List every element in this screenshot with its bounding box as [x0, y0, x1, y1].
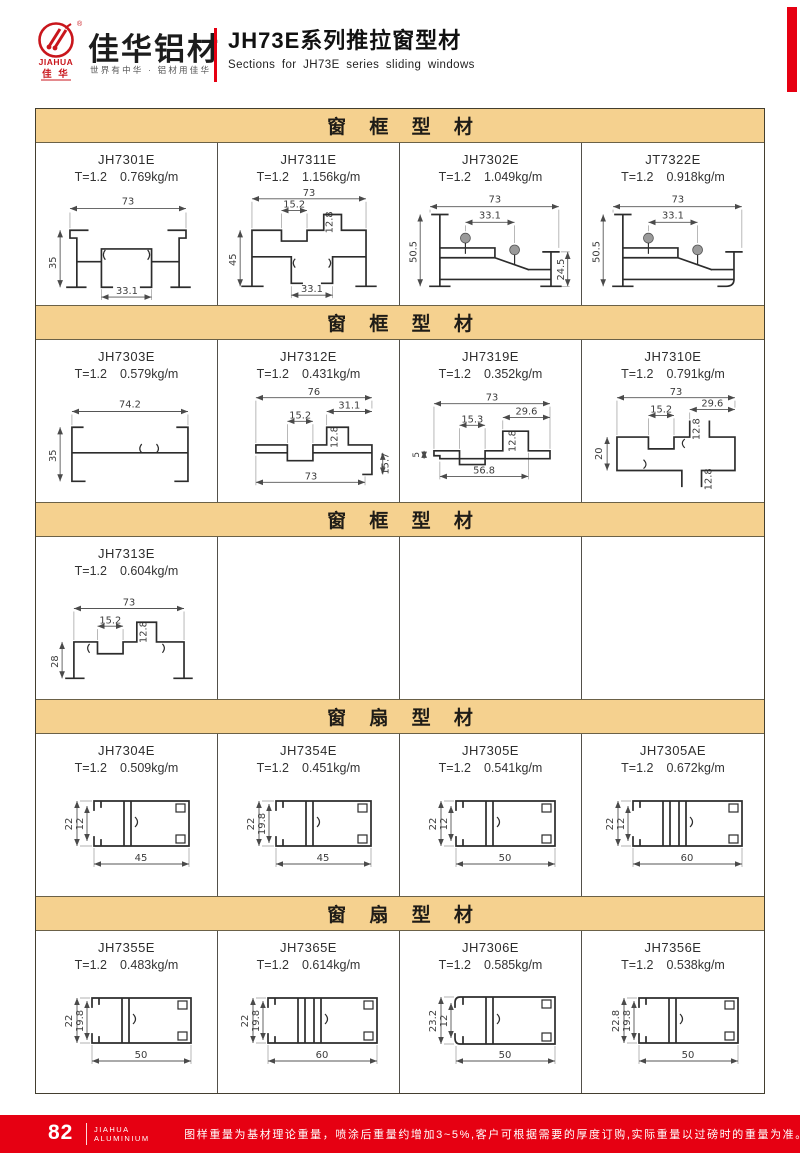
section-band-frame-3: 窗 框 型 材	[36, 502, 764, 537]
spec-weight: 1.049kg/m	[484, 170, 542, 184]
dim-label: 73	[122, 197, 135, 208]
spec-weight: 0.538kg/m	[666, 958, 724, 972]
spec-weight: 0.585kg/m	[484, 958, 542, 972]
profile-code: JH7305AE	[582, 743, 764, 758]
spec-thickness: T=1.2	[439, 958, 471, 972]
dim-label: 45	[228, 253, 239, 266]
dim-label: 50	[135, 1050, 148, 1061]
dim-label: 33.1	[301, 284, 323, 295]
spec-thickness: T=1.2	[257, 170, 289, 184]
profile-drawing-jh7354e: 22 19.8 45	[221, 776, 396, 876]
profile-spec: T=1.2 0.451kg/m	[218, 761, 399, 775]
spec-thickness: T=1.2	[621, 170, 653, 184]
section-band-sash-1: 窗 扇 型 材	[36, 699, 764, 734]
profile-spec: T=1.2 0.672kg/m	[582, 761, 764, 775]
spec-thickness: T=1.2	[75, 367, 107, 381]
profile-code: JH7302E	[400, 152, 581, 167]
footer-brand-line1: JIAHUA	[94, 1125, 150, 1134]
profile-code: JH7319E	[400, 349, 581, 364]
spec-weight: 0.352kg/m	[484, 367, 542, 381]
dim-label: 22	[64, 1015, 75, 1028]
dim-label: 22	[246, 818, 257, 831]
spec-weight: 0.672kg/m	[666, 761, 724, 775]
dim-label: 73	[303, 188, 316, 199]
profile-spec: T=1.2 0.541kg/m	[400, 761, 581, 775]
spec-weight: 0.431kg/m	[302, 367, 360, 381]
table-row: JH7303E T=1.2 0.579kg/m 74.2 35 JH7312E	[36, 340, 764, 502]
profile-spec: T=1.2 0.352kg/m	[400, 367, 581, 381]
dim-label: 50	[681, 1050, 694, 1061]
registered-mark: ®	[77, 20, 83, 28]
dim-label: 22.8	[611, 1010, 622, 1032]
profile-code: JH7304E	[36, 743, 217, 758]
profile-cell-jh7303e: JH7303E T=1.2 0.579kg/m 74.2 35	[36, 340, 218, 502]
profile-drawing-jh7304e: 22 12 45	[39, 776, 214, 876]
dim-label: 35	[48, 256, 59, 269]
profile-drawing-jh7305e: 22 12 50	[403, 776, 578, 876]
footer-bar: 82 JIAHUA ALUMINIUM 图样重量为基材理论重量，喷涂后重量约增加…	[0, 1115, 800, 1153]
dim-label: 33.1	[662, 210, 684, 221]
profile-code: JH7305E	[400, 743, 581, 758]
dim-label: 15.3	[461, 414, 483, 425]
profile-spec: T=1.2 0.918kg/m	[582, 170, 764, 184]
dim-label: 22	[605, 818, 616, 831]
dim-label: 50.5	[408, 241, 419, 263]
spec-weight: 0.918kg/m	[666, 170, 724, 184]
dim-label: 33.1	[479, 210, 501, 221]
dim-label: 12.8	[691, 418, 702, 440]
profile-cell-jh7354e: JH7354E T=1.2 0.451kg/m 22 19.8 45	[218, 734, 400, 896]
footer-note: 图样重量为基材理论重量，喷涂后重量约增加3~5%,客户可根据需要的厚度订购,实际…	[200, 1115, 792, 1153]
section-band-frame-1: 窗 框 型 材	[36, 109, 764, 143]
dim-label: 19.8	[622, 1010, 633, 1032]
catalog-page: ® JIAHUA 佳 华 佳华铝材 世界有中华 · 铝材用佳华 JH73E系列推…	[0, 0, 800, 1167]
spec-weight: 0.604kg/m	[120, 564, 178, 578]
spec-thickness: T=1.2	[439, 170, 471, 184]
dim-label: 50	[499, 1050, 512, 1061]
dim-label: 73	[486, 393, 499, 404]
profile-spec: T=1.2 1.049kg/m	[400, 170, 581, 184]
section-band-frame-2: 窗 框 型 材	[36, 305, 764, 340]
dim-label: 22	[428, 818, 439, 831]
profile-code: JH7355E	[36, 940, 217, 955]
profile-spec: T=1.2 0.579kg/m	[36, 367, 217, 381]
spec-thickness: T=1.2	[75, 170, 107, 184]
profile-drawing-jh7302e: 73 33.1 50.5 24.5	[403, 185, 578, 303]
spec-thickness: T=1.2	[621, 761, 653, 775]
spec-weight: 0.483kg/m	[120, 958, 178, 972]
dim-label: 12.8	[330, 426, 341, 448]
profile-spec: T=1.2 1.156kg/m	[218, 170, 399, 184]
dim-label: 23.2	[428, 1010, 439, 1032]
spec-thickness: T=1.2	[621, 367, 653, 381]
profile-code: JH7313E	[36, 546, 217, 561]
profile-cell-jh7302e: JH7302E T=1.2 1.049kg/m 73 33.1 50.5 24.…	[400, 143, 582, 305]
footer-brand: JIAHUA ALUMINIUM	[94, 1125, 150, 1143]
table-row: JH7355E T=1.2 0.483kg/m 22 19.8 50	[36, 931, 764, 1093]
profile-cell-jh7310e: JH7310E T=1.2 0.791kg/m 73 15.2 29.6 12.…	[582, 340, 764, 502]
spec-thickness: T=1.2	[257, 958, 289, 972]
profile-cell-jh7304e: JH7304E T=1.2 0.509kg/m 22 12 45	[36, 734, 218, 896]
dim-label: 45	[317, 853, 330, 864]
dim-label: 12	[616, 818, 627, 831]
profile-drawing-jh7312e: 76 31.1 15.2 12.8 73 15.7	[221, 382, 396, 500]
profile-spec: T=1.2 0.483kg/m	[36, 958, 217, 972]
spec-thickness: T=1.2	[439, 761, 471, 775]
dim-label: 56.8	[473, 465, 495, 476]
dim-label: 50.5	[591, 241, 602, 263]
profile-spec: T=1.2 0.604kg/m	[36, 564, 217, 578]
header-red-divider	[214, 28, 217, 82]
profile-code: JT7322E	[582, 152, 764, 167]
profile-cell-jh7305e: JH7305E T=1.2 0.541kg/m 22 12 50	[400, 734, 582, 896]
spec-weight: 0.614kg/m	[302, 958, 360, 972]
profile-drawing-jh7306e: 23.2 12 50	[403, 973, 578, 1073]
footer-brand-line2: ALUMINIUM	[94, 1134, 150, 1143]
profile-drawing-jh7310e: 73 15.2 29.6 12.8 20 12.8	[586, 382, 761, 500]
spec-weight: 0.509kg/m	[120, 761, 178, 775]
profile-cell-jh7311e: JH7311E T=1.2 1.156kg/m 73 15.2 12.8 45 …	[218, 143, 400, 305]
profile-drawing-jh7305ae: 22 12 60	[586, 776, 761, 876]
profile-cell-jh7319e: JH7319E T=1.2 0.352kg/m 73 15.3 29.6 12.…	[400, 340, 582, 502]
spec-weight: 0.769kg/m	[120, 170, 178, 184]
profile-drawing-jh7319e: 73 15.3 29.6 12.8 5 56.8	[403, 382, 578, 500]
series-title-cn: JH73E系列推拉窗型材	[228, 23, 475, 55]
dim-label: 73	[489, 195, 502, 206]
spec-weight: 0.541kg/m	[484, 761, 542, 775]
profile-code: JH7311E	[218, 152, 399, 167]
profile-drawing-jh7356e: 22.8 19.8 50	[586, 973, 761, 1073]
profile-spec: T=1.2 0.614kg/m	[218, 958, 399, 972]
profile-cell-jh7305ae: JH7305AE T=1.2 0.672kg/m 22 12 60	[582, 734, 764, 896]
page-header: ® JIAHUA 佳 华 佳华铝材 世界有中华 · 铝材用佳华 JH73E系列推…	[0, 0, 800, 108]
dim-label: 73	[671, 195, 684, 206]
empty-cell	[582, 537, 764, 699]
dim-label: 50	[499, 853, 512, 864]
dim-label: 33.1	[116, 286, 138, 297]
spec-thickness: T=1.2	[621, 958, 653, 972]
dim-label: 22	[64, 818, 75, 831]
dim-label: 15.2	[283, 200, 305, 211]
table-row: JH7304E T=1.2 0.509kg/m 22 12 45	[36, 734, 764, 896]
dim-label: 12.8	[508, 430, 519, 452]
profile-cell-jh7301e: JH7301E T=1.2 0.769kg/m 73 35 33.1	[36, 143, 218, 305]
profile-cell-jh7313e: JH7313E T=1.2 0.604kg/m 73 15.2 12.8 28	[36, 537, 218, 699]
jiahua-logo-icon: ® JIAHUA 佳 华	[28, 16, 84, 82]
dim-label: 60	[316, 1050, 329, 1061]
profile-cell-jh7306e: JH7306E T=1.2 0.585kg/m 23.2 12 50	[400, 931, 582, 1093]
profile-code: JH7312E	[218, 349, 399, 364]
spec-weight: 0.791kg/m	[666, 367, 724, 381]
profile-drawing-jh7303e: 74.2 35	[39, 382, 214, 500]
logo-latin-text: JIAHUA	[39, 57, 74, 67]
profile-drawing-jh7311e: 73 15.2 12.8 45 33.1	[221, 185, 396, 303]
footer-divider	[86, 1123, 87, 1145]
dim-label: 5	[412, 452, 422, 458]
dim-label: 19.8	[75, 1010, 86, 1032]
profile-spec: T=1.2 0.509kg/m	[36, 761, 217, 775]
table-row: JH7313E T=1.2 0.604kg/m 73 15.2 12.8 28	[36, 537, 764, 699]
spec-thickness: T=1.2	[257, 367, 289, 381]
profile-code: JH7301E	[36, 152, 217, 167]
spec-thickness: T=1.2	[75, 761, 107, 775]
profile-code: JH7310E	[582, 349, 764, 364]
profile-cell-jh7356e: JH7356E T=1.2 0.538kg/m 22.8 19.8 50	[582, 931, 764, 1093]
page-number: 82	[48, 1121, 73, 1145]
empty-cell	[400, 537, 582, 699]
profile-drawing-jh7301e: 73 35 33.1	[39, 185, 214, 303]
dim-label: 60	[680, 853, 693, 864]
spec-thickness: T=1.2	[75, 958, 107, 972]
profile-drawing-jh7355e: 22 19.8 50	[39, 973, 214, 1073]
dim-label: 73	[305, 471, 318, 482]
dim-label: 73	[669, 387, 682, 398]
dim-label: 15.7	[381, 453, 392, 475]
brand-tagline: 世界有中华 · 铝材用佳华	[90, 64, 211, 76]
logo-cn-text: 佳 华	[42, 68, 70, 80]
profile-cell-jh7312e: JH7312E T=1.2 0.431kg/m 76 31.1 15.2 12.…	[218, 340, 400, 502]
dim-label: 15.2	[650, 404, 672, 415]
dim-label: 15.2	[99, 615, 121, 626]
profile-code: JH7356E	[582, 940, 764, 955]
profiles-table: 窗 框 型 材 JH7301E T=1.2 0.769kg/m 73 35 33…	[35, 108, 765, 1094]
dim-label: 19.8	[251, 1010, 262, 1032]
spec-thickness: T=1.2	[257, 761, 289, 775]
dim-label: 12	[439, 818, 450, 831]
profile-drawing-jh7313e: 73 15.2 12.8 28	[39, 579, 214, 697]
dim-label: 29.6	[515, 406, 537, 417]
dim-label: 24.5	[556, 259, 567, 281]
dim-label: 19.8	[257, 813, 268, 835]
dim-label: 31.1	[338, 401, 360, 412]
dim-label: 35	[48, 449, 59, 462]
profile-drawing-jh7365e: 22 19.8 60	[221, 973, 396, 1073]
dim-label: 15.2	[289, 410, 311, 421]
profile-code: JH7303E	[36, 349, 217, 364]
spec-thickness: T=1.2	[439, 367, 471, 381]
spec-weight: 0.451kg/m	[302, 761, 360, 775]
profile-spec: T=1.2 0.585kg/m	[400, 958, 581, 972]
profile-code: JH7354E	[218, 743, 399, 758]
profile-code: JH7365E	[218, 940, 399, 955]
spec-weight: 1.156kg/m	[302, 170, 360, 184]
spec-weight: 0.579kg/m	[120, 367, 178, 381]
profile-spec: T=1.2 0.538kg/m	[582, 958, 764, 972]
profile-spec: T=1.2 0.769kg/m	[36, 170, 217, 184]
profile-cell-jh7355e: JH7355E T=1.2 0.483kg/m 22 19.8 50	[36, 931, 218, 1093]
dim-label: 73	[123, 598, 136, 609]
page-titles: JH73E系列推拉窗型材 Sections for JH73E series s…	[228, 23, 475, 71]
table-row: JH7301E T=1.2 0.769kg/m 73 35 33.1	[36, 143, 764, 305]
brand-name: 佳华铝材	[88, 24, 220, 69]
dim-label: 28	[50, 655, 61, 668]
series-title-en: Sections for JH73E series sliding window…	[228, 59, 475, 71]
dim-label: 12	[439, 1015, 450, 1028]
dim-label: 20	[594, 448, 605, 461]
profile-spec: T=1.2 0.791kg/m	[582, 367, 764, 381]
dim-label: 29.6	[701, 399, 723, 410]
profile-cell-jh7365e: JH7365E T=1.2 0.614kg/m 22 19.8 60	[218, 931, 400, 1093]
profile-drawing-jt7322e: 73 33.1 50.5	[586, 185, 761, 303]
empty-cell	[218, 537, 400, 699]
dim-label: 12.8	[703, 468, 714, 490]
dim-label: 74.2	[119, 400, 141, 411]
dim-label: 45	[135, 853, 148, 864]
dim-label: 76	[308, 387, 321, 398]
page-edge-red-tab	[787, 7, 797, 92]
section-band-sash-2: 窗 扇 型 材	[36, 896, 764, 931]
profile-spec: T=1.2 0.431kg/m	[218, 367, 399, 381]
dim-label: 12	[75, 818, 86, 831]
spec-thickness: T=1.2	[75, 564, 107, 578]
dim-label: 22	[240, 1015, 251, 1028]
dim-label: 12.8	[139, 621, 150, 643]
profile-cell-jt7322e: JT7322E T=1.2 0.918kg/m 73 33.1 50.5	[582, 143, 764, 305]
profile-code: JH7306E	[400, 940, 581, 955]
